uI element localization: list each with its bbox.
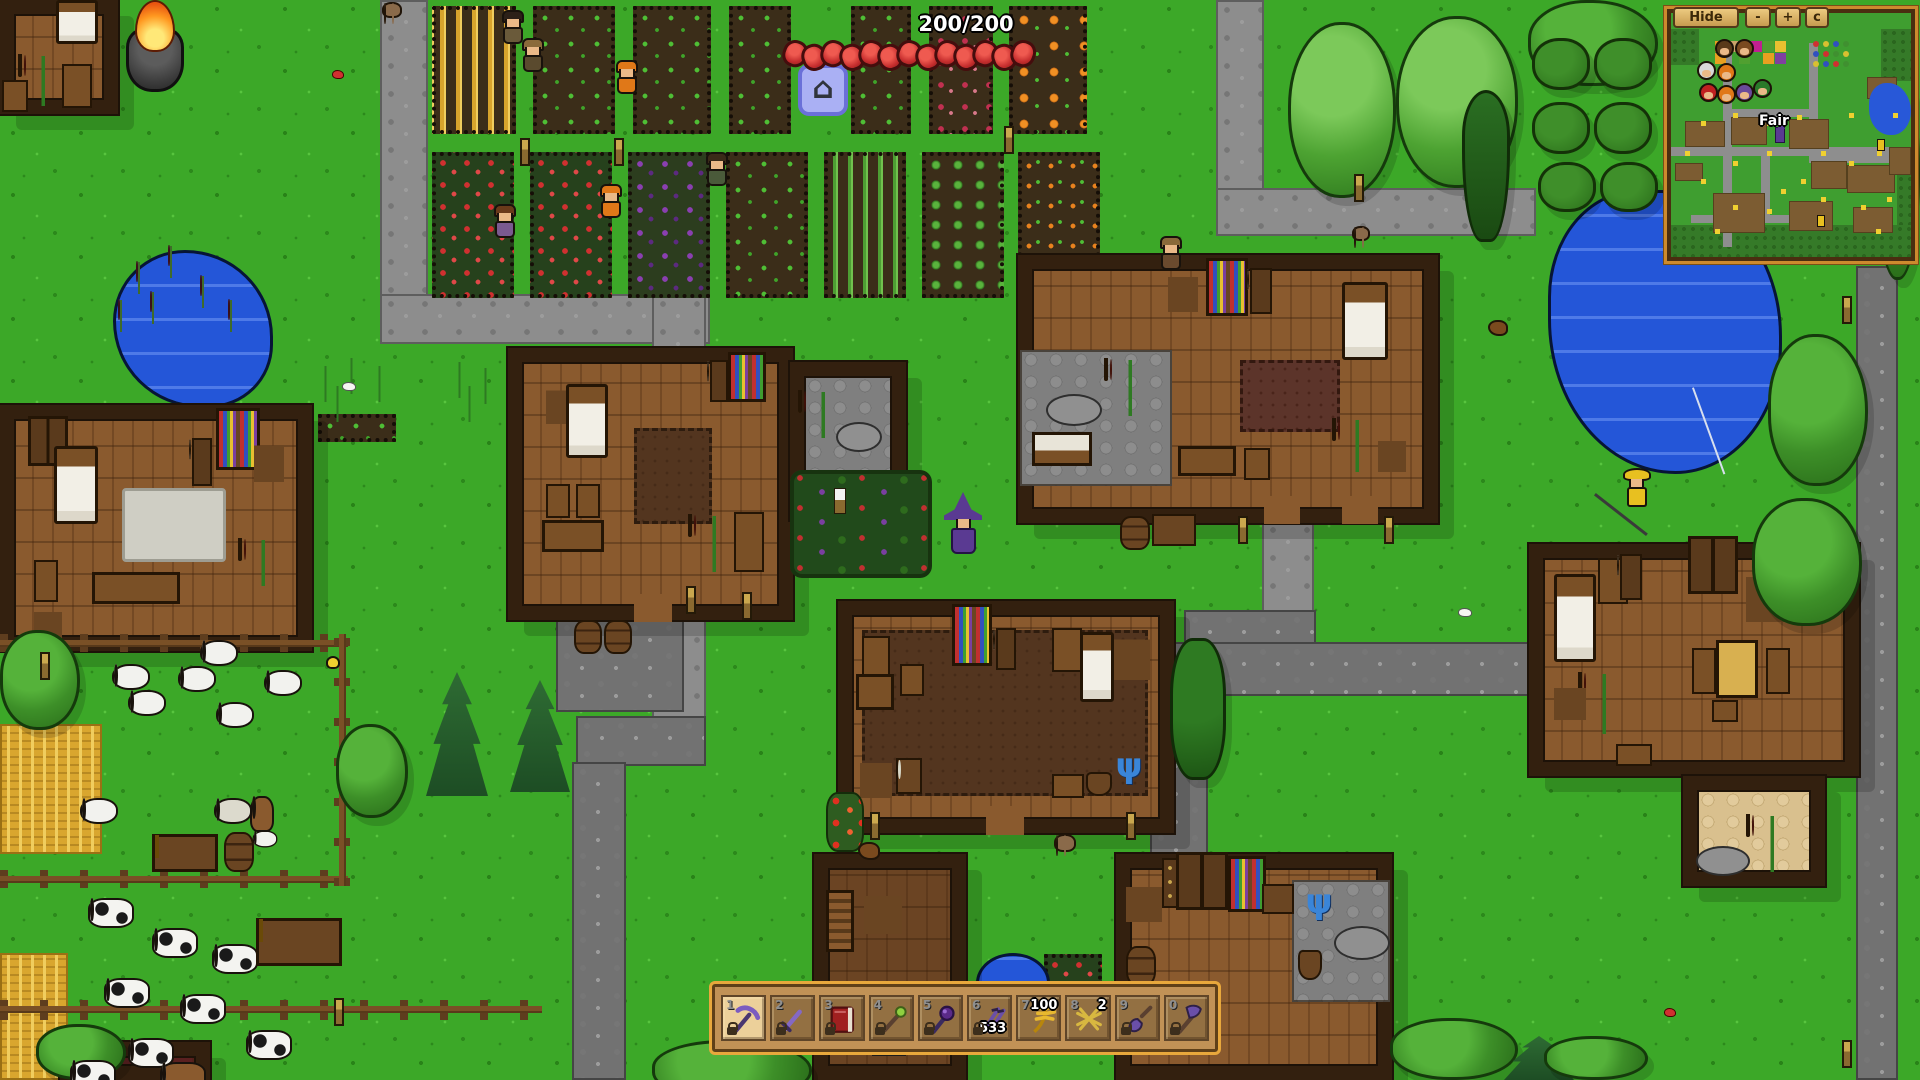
farm-plot-corn[interactable]	[824, 152, 906, 298]
hay-trough[interactable]	[152, 834, 218, 872]
furniture-rose[interactable]	[810, 392, 836, 438]
cattail	[168, 246, 174, 278]
furniture-bed[interactable]	[1342, 282, 1388, 360]
farm-plot-sprout[interactable]	[729, 6, 791, 134]
stone-path	[1216, 0, 1264, 196]
farm-plot-cabbage[interactable]	[922, 152, 1004, 298]
farm-plot-sprout[interactable]	[633, 6, 711, 134]
hotbar-slot-5[interactable]: 5	[918, 995, 963, 1041]
minimap-berry	[1833, 41, 1839, 47]
npc-body	[495, 221, 515, 238]
furniture-door[interactable]	[634, 594, 672, 622]
fence	[0, 870, 348, 888]
minimap-light-dot	[1733, 205, 1738, 210]
furniture-rose[interactable]	[1758, 816, 1786, 872]
fisherman-npc[interactable]	[1622, 468, 1652, 520]
player-character[interactable]	[944, 492, 982, 556]
hotbar-slot-2[interactable]: 2	[770, 995, 815, 1041]
oak-tree[interactable]	[336, 724, 408, 818]
farm-plot-tomato[interactable]	[530, 152, 612, 298]
minimap-berry	[1843, 51, 1849, 57]
minimap-buttons: Hide - + c	[1669, 7, 1917, 29]
npc-body	[601, 201, 621, 218]
minimap-zoom-out-button[interactable]: -	[1745, 7, 1771, 28]
torch[interactable]	[1238, 516, 1248, 544]
minimap-berry	[1833, 51, 1839, 57]
lamb[interactable]	[253, 831, 278, 848]
cow[interactable]	[88, 898, 134, 928]
furniture-chair[interactable]	[576, 484, 600, 518]
wizard-hat	[944, 492, 982, 520]
hotbar-slot-1[interactable]: 1	[721, 995, 766, 1041]
health-bar-links	[788, 42, 1035, 69]
oak-tree[interactable]	[1390, 1018, 1518, 1080]
torch[interactable]	[1842, 296, 1852, 324]
minimap-content[interactable]: Fair	[1671, 29, 1911, 257]
minimap-light-dot	[1861, 205, 1866, 210]
redbird[interactable]	[1664, 1008, 1676, 1017]
bush-tree[interactable]	[1532, 102, 1590, 154]
torch[interactable]	[870, 812, 880, 840]
furniture-chair[interactable]	[546, 484, 570, 518]
lock-icon	[875, 1027, 885, 1035]
minimap-light-dot	[1821, 151, 1826, 156]
furniture-rose[interactable]	[700, 516, 728, 572]
minimap-forest	[1671, 29, 1699, 65]
furniture-pot[interactable]	[1086, 772, 1112, 796]
furniture-candelabra[interactable]	[1126, 872, 1162, 922]
furniture-candelabra[interactable]	[1114, 622, 1150, 680]
furniture-bookshelf[interactable]	[952, 604, 992, 666]
villager-npc[interactable]	[704, 152, 730, 188]
furniture-candelabra[interactable]	[1378, 428, 1406, 472]
cow[interactable]	[70, 1060, 116, 1080]
minimap-building	[1847, 165, 1895, 193]
bird[interactable]	[1458, 608, 1472, 617]
minimap-villager-marker	[1877, 139, 1885, 151]
furniture-barrel[interactable]	[1126, 946, 1156, 986]
sheep[interactable]	[80, 798, 118, 824]
health-value: 200/200	[906, 12, 1026, 36]
furniture-bowstand[interactable]	[896, 758, 922, 794]
health-bar: 200/200	[788, 12, 1088, 76]
furniture-chair[interactable]	[734, 512, 764, 572]
minimap-npc-face	[1699, 83, 1718, 102]
stone-path	[380, 0, 428, 332]
cow[interactable]	[160, 1062, 206, 1080]
torch[interactable]	[1004, 126, 1014, 154]
hotbar-slot-6[interactable]: 6533	[967, 995, 1012, 1041]
minimap-light-dot	[1767, 209, 1772, 214]
hotbar-slot-8[interactable]: 82	[1065, 995, 1110, 1041]
furniture-candelabra[interactable]	[254, 430, 284, 482]
minimap-building	[1789, 201, 1833, 231]
minimap-hide-button[interactable]: Hide	[1673, 7, 1739, 28]
item-count: 100	[1030, 999, 1057, 1012]
npc-body	[617, 77, 637, 94]
furniture-chair[interactable]	[900, 664, 924, 696]
duck[interactable]	[326, 656, 340, 669]
sheep[interactable]	[178, 666, 216, 692]
stone-path	[572, 762, 626, 1080]
minimap-zoom-in-button[interactable]: +	[1775, 7, 1801, 28]
lock-icon	[1121, 1027, 1131, 1035]
sheep[interactable]	[200, 640, 238, 666]
hotbar-slot-7[interactable]: 7100	[1016, 995, 1061, 1041]
furniture-chair[interactable]	[62, 64, 92, 108]
sheep[interactable]	[128, 690, 166, 716]
torch[interactable]	[1354, 174, 1364, 202]
minimap-berry	[1823, 41, 1829, 47]
torch[interactable]	[742, 592, 752, 620]
fire-flame	[135, 0, 175, 52]
fisher-body	[1627, 487, 1647, 507]
bush-tree[interactable]	[1594, 38, 1652, 90]
farm-plot-carrot[interactable]	[1018, 152, 1100, 272]
rabbit[interactable]	[1352, 226, 1370, 241]
sheep[interactable]	[214, 798, 252, 824]
minimap-light-dot	[1701, 179, 1706, 184]
npc-body	[1161, 253, 1181, 270]
furniture-chair[interactable]	[1244, 448, 1270, 480]
minimap-building	[1713, 193, 1765, 233]
minimap-light-dot	[1733, 161, 1738, 166]
furniture-chair[interactable]	[1712, 700, 1738, 722]
hotbar: 12345653371008290	[712, 984, 1218, 1052]
minimap-npc-face	[1735, 83, 1754, 102]
furniture-barrel[interactable]	[574, 620, 602, 654]
farm-plot-sprout[interactable]	[726, 152, 808, 298]
furniture-wardrobe[interactable]	[1176, 852, 1228, 910]
minimap-berry	[1833, 61, 1839, 67]
barrel[interactable]	[224, 832, 254, 872]
minimap-light-dot	[1781, 189, 1786, 194]
minimap-light-dot	[1685, 151, 1690, 156]
oak-tree[interactable]	[1544, 1036, 1648, 1080]
minimap-villager-marker	[1817, 215, 1825, 227]
furniture-table[interactable]	[542, 520, 604, 552]
rabbit[interactable]	[382, 2, 402, 18]
minimap-lake	[1869, 83, 1911, 135]
sunflower[interactable]	[372, 366, 386, 402]
lock-icon	[727, 1027, 737, 1035]
squirrel[interactable]	[1488, 320, 1508, 336]
furniture-table[interactable]	[92, 572, 180, 604]
furniture-bench[interactable]	[1616, 744, 1652, 766]
lock-icon	[825, 1027, 835, 1035]
torch[interactable]	[1384, 516, 1394, 544]
furniture-bookshelf[interactable]	[1228, 856, 1266, 912]
world-stage: ψψ⌂	[0, 0, 1920, 1080]
furniture-chair[interactable]	[1766, 648, 1790, 694]
minimap-light-dot	[1715, 229, 1720, 234]
minimap-crop	[1775, 41, 1786, 52]
minimap-berry	[1813, 61, 1819, 67]
furniture-bed[interactable]	[54, 446, 98, 524]
furniture-clock[interactable]	[192, 438, 212, 486]
cattail	[118, 300, 124, 332]
minimap-berry	[1823, 61, 1829, 67]
furniture-candelabra[interactable]	[1554, 674, 1586, 720]
cow[interactable]	[180, 994, 226, 1024]
furniture-bed[interactable]	[56, 0, 98, 44]
furniture-table[interactable]	[1178, 446, 1236, 476]
minimap-light-dot	[1849, 113, 1854, 118]
furniture-barrel[interactable]	[604, 620, 632, 654]
furniture-carpetred[interactable]	[1240, 360, 1340, 432]
minimap-crop	[1775, 53, 1786, 64]
minimap-berry	[1823, 51, 1829, 57]
bush-tree[interactable]	[1538, 162, 1596, 212]
furniture-bed[interactable]	[1080, 632, 1114, 702]
minimap-npc-face	[1697, 61, 1716, 80]
furniture-chair[interactable]	[2, 80, 28, 112]
cattail	[228, 300, 234, 332]
minimap-light-dot	[1821, 197, 1826, 202]
furniture-candelabra[interactable]	[860, 748, 892, 798]
bush-tree[interactable]	[1594, 102, 1652, 154]
furniture-cart[interactable]	[1152, 514, 1196, 546]
hotbar-slot-9[interactable]: 9	[1115, 995, 1160, 1041]
minimap-building	[1889, 147, 1911, 175]
oak-tree[interactable]	[1768, 334, 1868, 486]
minimap-light-dot	[1701, 121, 1706, 126]
stone-path	[576, 716, 706, 766]
alpaca[interactable]	[250, 796, 274, 832]
furniture-rose[interactable]	[1590, 674, 1618, 734]
furniture-bed[interactable]	[566, 384, 608, 458]
furniture-barrel[interactable]	[1120, 516, 1150, 550]
torch[interactable]	[520, 138, 530, 166]
cow[interactable]	[246, 1030, 292, 1060]
lock-icon	[1170, 1027, 1180, 1035]
minimap-npc-face	[1717, 85, 1736, 104]
furniture-tub[interactable]	[1696, 846, 1750, 876]
minimap-berry	[1813, 51, 1819, 57]
hotbar-slot-4[interactable]: 4	[869, 995, 914, 1041]
hay-trough[interactable]	[256, 918, 342, 966]
npc-body	[523, 55, 543, 72]
lock-icon	[776, 1027, 786, 1035]
furniture-tablewhite[interactable]	[1032, 432, 1092, 466]
furniture-door[interactable]	[986, 806, 1024, 835]
cattail	[200, 276, 206, 308]
furniture-rose[interactable]	[1344, 420, 1370, 472]
sunflower[interactable]	[330, 386, 344, 422]
minimap-center-button[interactable]: c	[1805, 7, 1829, 28]
furniture-candle[interactable]	[834, 488, 846, 514]
sunflower[interactable]	[462, 386, 476, 422]
bush-tree[interactable]	[1600, 162, 1658, 212]
cattail	[136, 262, 142, 294]
furniture-chair[interactable]	[862, 636, 890, 676]
cypress-tree[interactable]	[1462, 90, 1510, 242]
furniture-tub[interactable]	[1046, 394, 1102, 426]
furniture-door[interactable]	[1342, 496, 1378, 524]
minimap-building	[1811, 161, 1847, 189]
player-body	[951, 528, 976, 554]
hotbar-slot-3[interactable]: 3	[819, 995, 864, 1041]
bush-tree[interactable]	[1532, 38, 1590, 90]
torch[interactable]	[614, 138, 624, 166]
sunflower[interactable]	[478, 368, 492, 404]
villager-npc[interactable]	[614, 60, 640, 96]
furniture-tub[interactable]	[1334, 926, 1390, 960]
furniture-chair[interactable]	[1692, 648, 1716, 694]
sheep[interactable]	[264, 670, 302, 696]
rose-bush[interactable]	[826, 792, 864, 852]
minimap-building	[1789, 119, 1829, 149]
furniture-bed[interactable]	[1554, 574, 1596, 662]
villager-npc[interactable]	[492, 204, 518, 240]
furniture-ladder[interactable]	[826, 890, 854, 952]
cow[interactable]	[152, 928, 198, 958]
hay-field	[0, 724, 102, 854]
hotbar-slot-0[interactable]: 0	[1164, 995, 1209, 1041]
minimap-forest	[1897, 175, 1911, 225]
torch[interactable]	[1842, 1040, 1852, 1068]
redbird[interactable]	[332, 70, 344, 79]
torch[interactable]	[334, 998, 344, 1026]
minimap-berry	[1843, 41, 1849, 47]
bird[interactable]	[342, 382, 356, 391]
furniture-wardrobe[interactable]	[1688, 536, 1738, 594]
cattail	[150, 292, 156, 324]
furniture-clock[interactable]	[1620, 554, 1642, 600]
fire-brazier[interactable]	[124, 0, 186, 96]
furniture-tableyellow[interactable]	[1716, 640, 1758, 698]
furniture-carpetdark[interactable]	[634, 428, 712, 524]
minimap-player-marker	[1775, 127, 1785, 143]
sheep[interactable]	[216, 702, 254, 728]
furniture-candelabra[interactable]	[864, 880, 902, 934]
minimap[interactable]: Fair Hide - + c	[1664, 6, 1918, 264]
torch[interactable]	[686, 586, 696, 614]
oak-tree[interactable]	[1752, 498, 1862, 626]
fence	[0, 1000, 542, 1020]
lock-icon	[924, 1027, 934, 1035]
furniture-pot[interactable]	[1298, 950, 1322, 980]
minimap-npc-face	[1717, 63, 1736, 82]
furniture-chair[interactable]	[34, 560, 58, 602]
furniture-table[interactable]	[856, 674, 894, 710]
minimap-light-dot	[1893, 113, 1898, 118]
villager-npc[interactable]	[1158, 236, 1184, 272]
minimap-building	[1675, 163, 1703, 181]
furniture-trident[interactable]: ψ	[1114, 746, 1144, 798]
villager-npc[interactable]	[520, 38, 546, 74]
minimap-building	[1853, 207, 1893, 233]
npc-body	[707, 169, 727, 186]
torch[interactable]	[1126, 812, 1136, 840]
squirrel[interactable]	[858, 842, 880, 860]
torch[interactable]	[40, 652, 50, 680]
furniture-door[interactable]	[1264, 496, 1300, 524]
bushcol-tree[interactable]	[1170, 638, 1226, 780]
minimap-forest	[1881, 29, 1911, 81]
minimap-light-dot	[1801, 179, 1806, 184]
minimap-light-dot	[1797, 115, 1802, 120]
minimap-berry	[1813, 41, 1819, 47]
berry-hedge[interactable]	[790, 470, 932, 578]
minimap-settlement-label: Fair	[1759, 113, 1789, 129]
minimap-light-dot	[1877, 151, 1882, 156]
minimap-crop	[1763, 41, 1774, 52]
minimap-light-dot	[1887, 197, 1892, 202]
cow[interactable]	[104, 978, 150, 1008]
furniture-bookshelf[interactable]	[1206, 258, 1248, 316]
minimap-light-dot	[1849, 161, 1854, 166]
furniture-tub[interactable]	[836, 422, 882, 452]
lock-icon	[973, 1027, 983, 1035]
furniture-clock[interactable]	[710, 360, 728, 402]
farm-plot-grape[interactable]	[628, 152, 710, 298]
minimap-npc-face	[1715, 39, 1734, 58]
furniture-chair[interactable]	[1052, 628, 1082, 672]
minimap-npc-face	[1735, 39, 1754, 58]
rabbit[interactable]	[1054, 834, 1076, 852]
furniture-rose[interactable]	[250, 540, 276, 586]
minimap-light-dot	[1876, 229, 1881, 234]
oak-tree[interactable]	[0, 630, 80, 730]
villager-npc[interactable]	[598, 184, 624, 220]
furniture-trident[interactable]: ψ	[1304, 882, 1334, 936]
minimap-crop	[1763, 53, 1774, 64]
minimap-berry	[1843, 61, 1849, 67]
furniture-rose[interactable]	[1116, 360, 1144, 416]
furniture-ruglight[interactable]	[122, 488, 226, 562]
furniture-rose[interactable]	[30, 56, 56, 106]
furniture-bookshelf[interactable]	[728, 352, 766, 402]
furniture-clock[interactable]	[1250, 268, 1272, 314]
furniture-fish[interactable]	[1262, 884, 1294, 914]
furniture-clock[interactable]	[996, 628, 1016, 670]
minimap-light-dot	[1733, 113, 1738, 118]
cow[interactable]	[212, 944, 258, 974]
apple-tree[interactable]	[1288, 22, 1396, 198]
sheep[interactable]	[112, 664, 150, 690]
furniture-bench[interactable]	[1052, 774, 1084, 798]
minimap-npc-face	[1753, 79, 1772, 98]
item-count: 2	[1098, 999, 1107, 1012]
game-viewport: ψψ⌂ 200/200 Fair Hide - + c 123456533710…	[0, 0, 1920, 1080]
pine-tree[interactable]	[426, 672, 488, 796]
minimap-light-dot	[1767, 151, 1772, 156]
